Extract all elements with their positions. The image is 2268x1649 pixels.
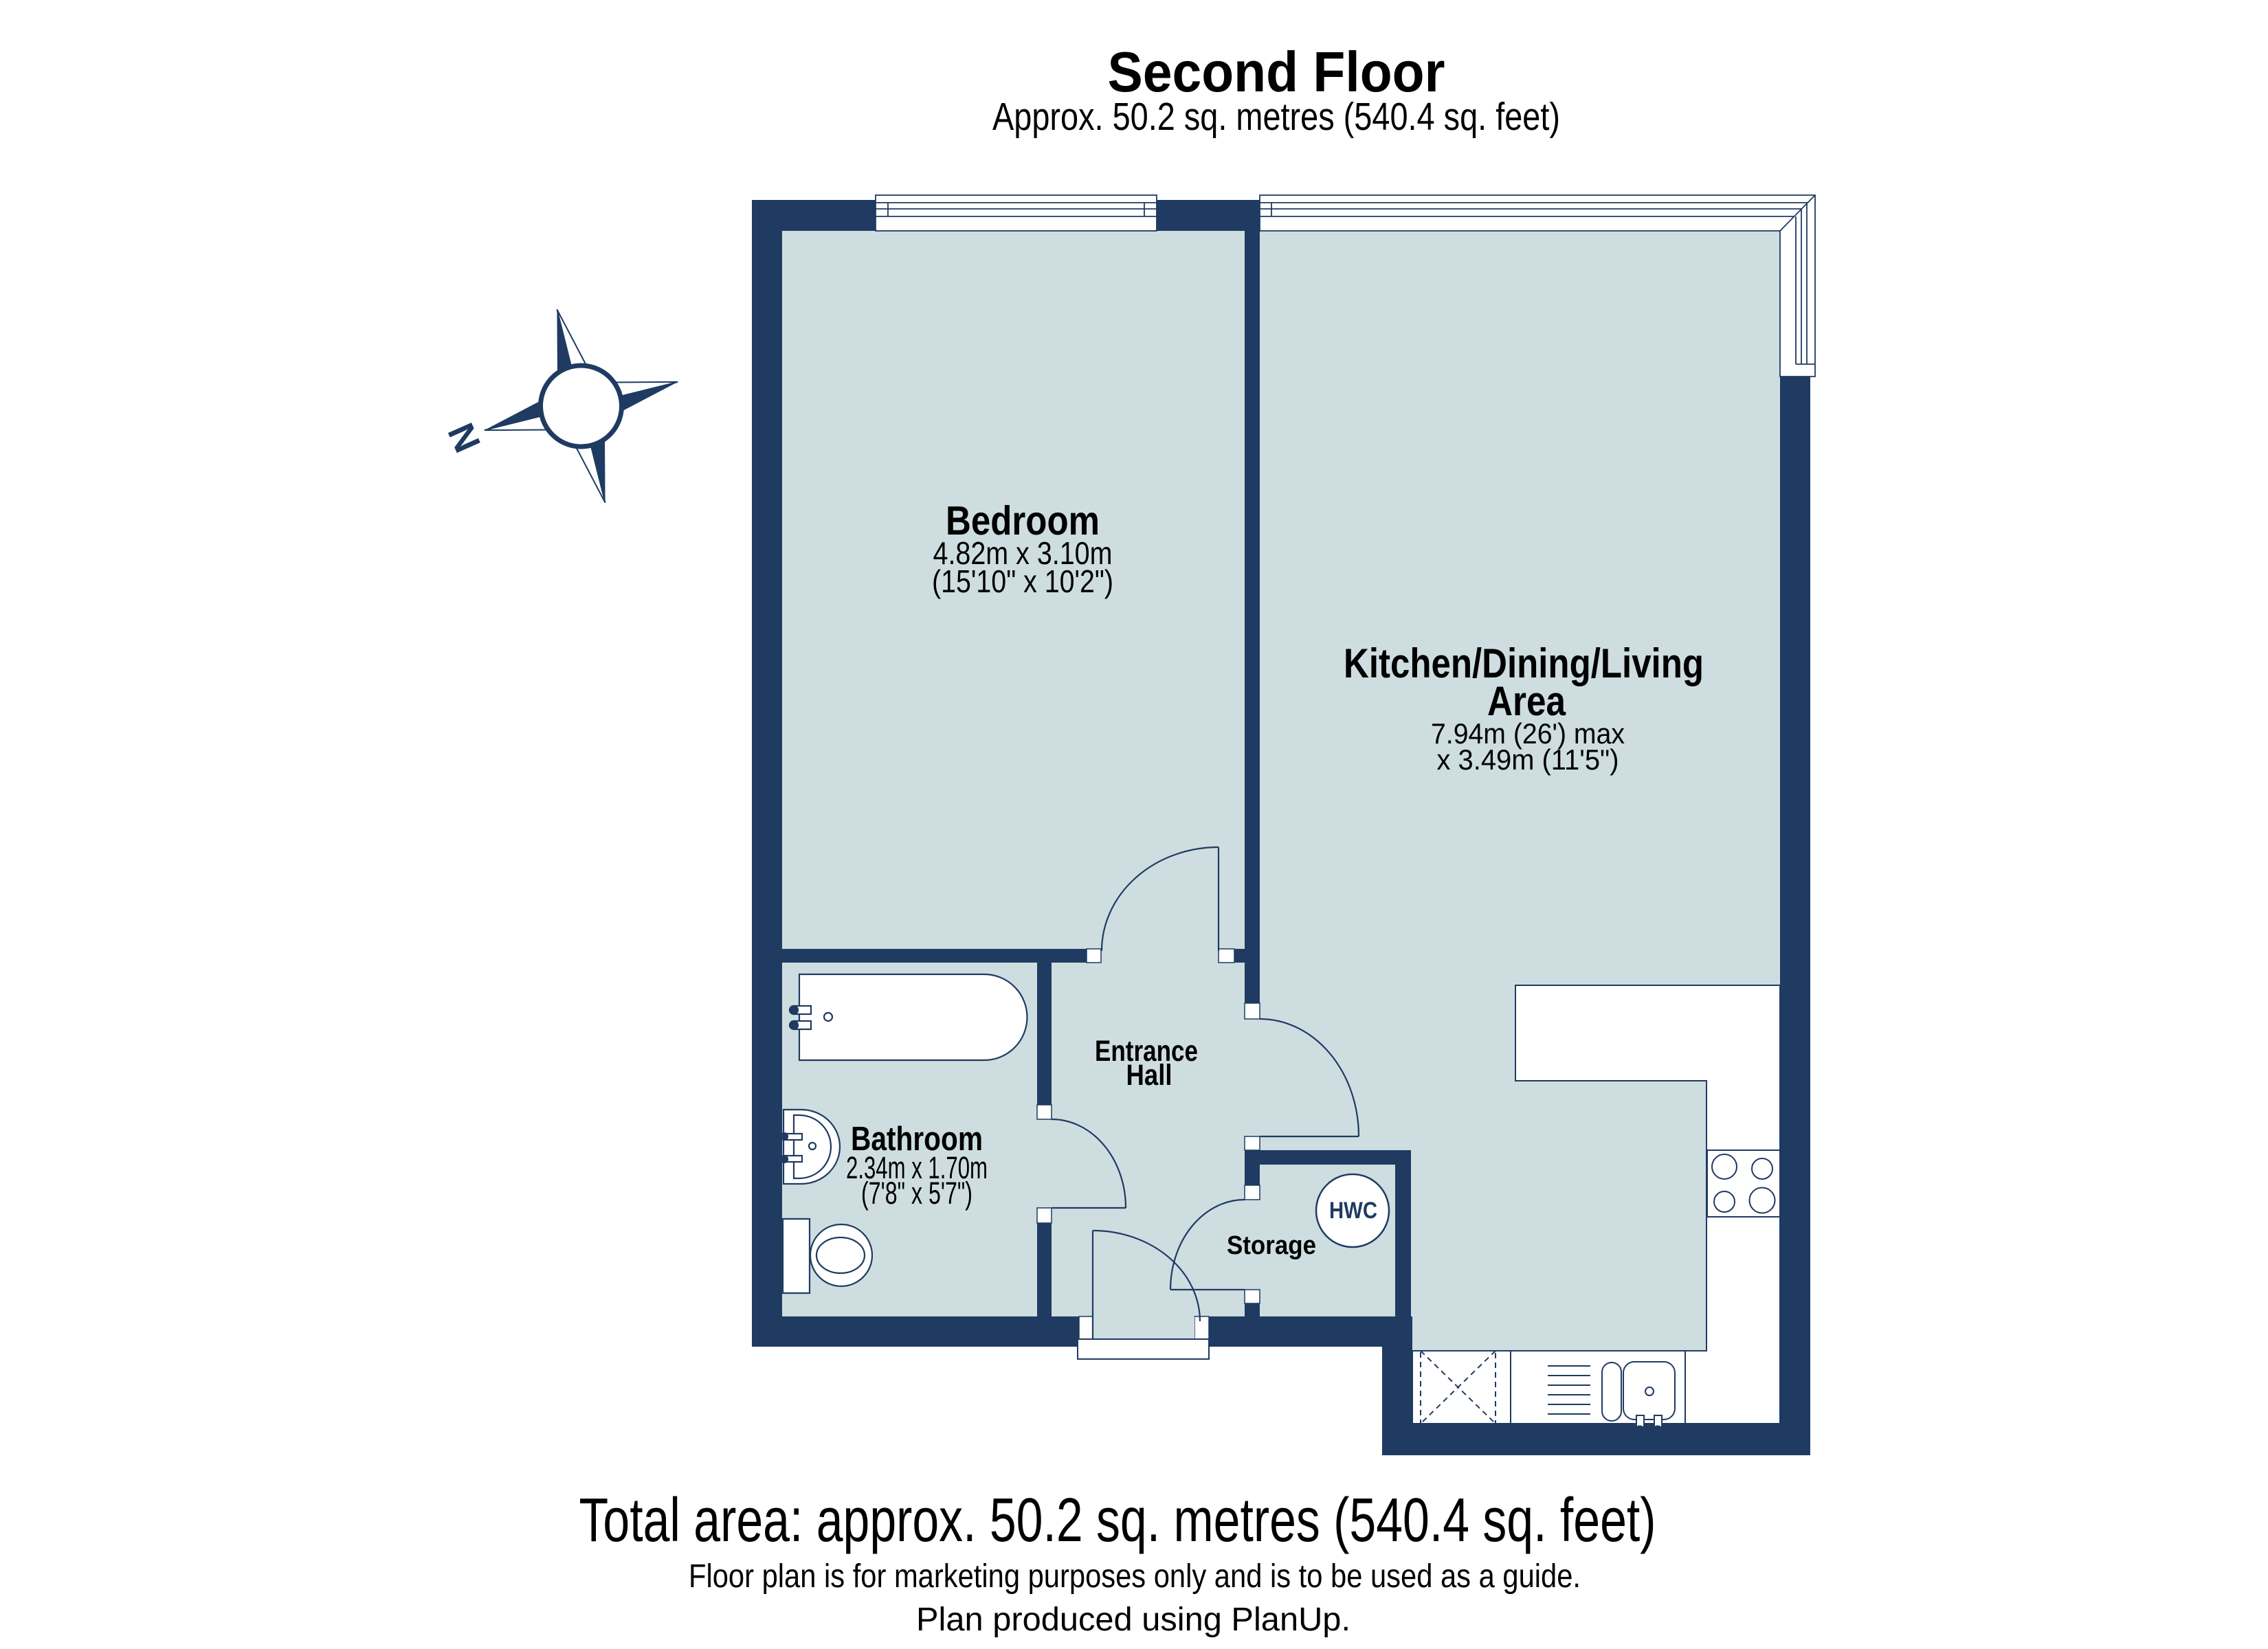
svg-text:Storage: Storage bbox=[1227, 1231, 1316, 1260]
svg-text:(15'10" x 10'2"): (15'10" x 10'2") bbox=[932, 563, 1113, 599]
svg-text:(7'8" x 5'7"): (7'8" x 5'7") bbox=[861, 1176, 972, 1211]
svg-text:Hall: Hall bbox=[1126, 1059, 1172, 1092]
svg-text:x 3.49m (11'5"): x 3.49m (11'5") bbox=[1437, 743, 1619, 776]
svg-text:Approx. 50.2 sq. metres (540.4: Approx. 50.2 sq. metres (540.4 sq. feet) bbox=[992, 95, 1560, 139]
svg-text:Floor plan is for marketing pu: Floor plan is for marketing purposes onl… bbox=[689, 1558, 1581, 1595]
svg-text:Total area: approx. 50.2 sq. m: Total area: approx. 50.2 sq. metres (540… bbox=[579, 1486, 1656, 1555]
svg-text:HWC: HWC bbox=[1329, 1198, 1377, 1224]
svg-text:Plan produced using PlanUp.: Plan produced using PlanUp. bbox=[916, 1602, 1350, 1638]
